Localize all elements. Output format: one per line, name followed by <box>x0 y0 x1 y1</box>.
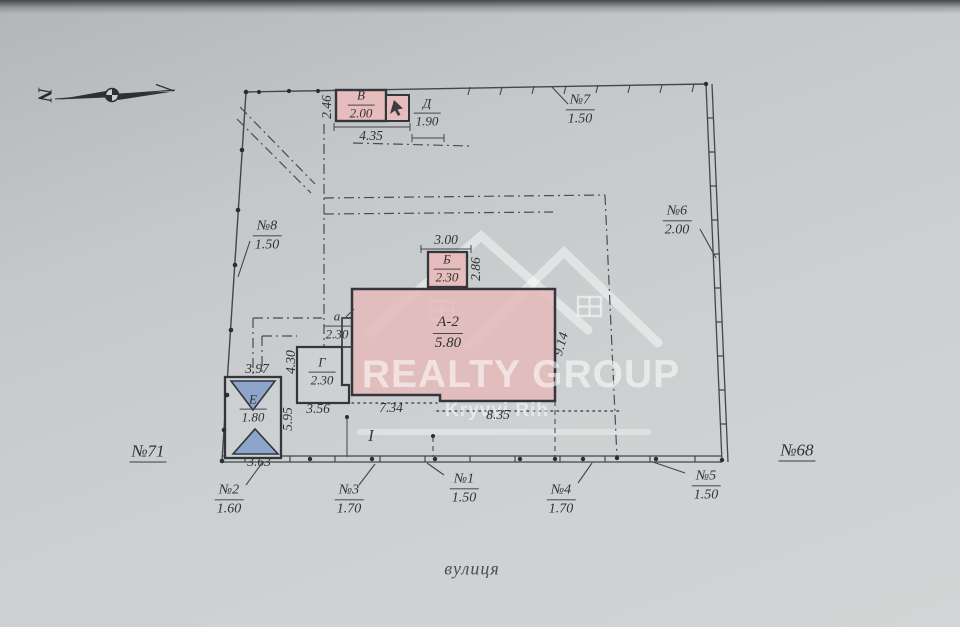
building-letter: Е <box>240 392 267 410</box>
mark-number: №4 <box>547 481 576 500</box>
dim-4-35: 4.35 <box>359 128 383 144</box>
building-value: 5.80 <box>433 334 463 354</box>
dim-4-30: 4.30 <box>283 350 299 374</box>
fence-mark-7: №7 1.50 <box>566 91 595 128</box>
fence-mark-4: №4 1.70 <box>547 481 576 518</box>
mark-number: №6 <box>663 202 692 221</box>
building-letter: Б <box>434 252 461 270</box>
building-b-label: Б 2.30 <box>434 252 461 287</box>
building-letter: Г <box>309 355 336 373</box>
building-letter: А-2 <box>433 313 463 334</box>
fence-mark-6: №6 2.00 <box>663 202 692 239</box>
mark-length: 1.50 <box>253 237 282 255</box>
mark-length: 1.60 <box>215 501 244 519</box>
dim-3-97: 3.97 <box>245 361 269 377</box>
building-letter: В <box>348 88 375 106</box>
dim-2-86: 2.86 <box>468 257 484 281</box>
mark-number: №8 <box>253 217 282 236</box>
building-value: 2.30 <box>324 327 351 344</box>
neighbor-plot-right: №68 <box>778 441 815 462</box>
watermark-brand: REALTY GROUP <box>362 353 680 397</box>
fence-mark-2: №2 1.60 <box>215 481 244 518</box>
building-e-label: Е 1.80 <box>240 392 267 427</box>
right-fence <box>706 84 728 462</box>
dim-3-00: 3.00 <box>434 232 458 248</box>
scanned-site-plan: REALTY GROUP Kryvyi Rih N В 2.00 Д 1.90 … <box>0 0 960 627</box>
annex-a-label: а 2.30 <box>324 309 351 344</box>
fence-mark-1: №1 1.50 <box>450 470 479 507</box>
mark-length: 1.50 <box>692 487 721 505</box>
building-value: 1.90 <box>414 114 441 131</box>
fence-mark-5: №5 1.50 <box>692 467 721 504</box>
building-letter: Д <box>414 96 441 114</box>
fence-mark-3: №3 1.70 <box>335 481 364 518</box>
street-label: вулиця <box>444 559 500 580</box>
mark-length: 2.00 <box>663 222 692 240</box>
building-letter: а <box>324 309 351 327</box>
north-letter: N <box>33 88 56 102</box>
mark-number: №3 <box>335 481 364 500</box>
mark-length: 1.70 <box>335 501 364 519</box>
building-value: 2.30 <box>434 270 461 287</box>
north-arrow-icon <box>55 85 175 102</box>
mark-length: 1.50 <box>566 111 595 129</box>
dim-8-35: 8.35 <box>486 407 510 423</box>
dim-7-34: 7.34 <box>379 400 403 416</box>
site-plan-linework <box>0 0 960 627</box>
building-value: 2.00 <box>348 106 375 123</box>
dim-2-46: 2.46 <box>319 95 335 119</box>
mark-number: №5 <box>692 467 721 486</box>
building-v-label: В 2.00 <box>348 88 375 123</box>
dim-5-95: 5.95 <box>280 407 296 431</box>
mark-number: №7 <box>566 91 595 110</box>
building-a2-label: А-2 5.80 <box>433 313 463 353</box>
building-g-label: Г 2.30 <box>309 355 336 390</box>
mark-length: 1.70 <box>547 501 576 519</box>
neighbor-plot-left: №71 <box>129 442 166 463</box>
dim-3-63: 3.63 <box>247 454 271 470</box>
bottom-fence <box>222 456 722 462</box>
building-value: 1.80 <box>240 410 267 427</box>
building-value: 2.30 <box>309 373 336 390</box>
mark-length: 1.50 <box>450 490 479 508</box>
dim-3-56: 3.56 <box>306 401 330 417</box>
building-d-label: Д 1.90 <box>414 96 441 131</box>
mark-number: №2 <box>215 481 244 500</box>
mark-number: №1 <box>450 470 479 489</box>
section-numeral: I <box>368 426 374 446</box>
leader-lines <box>238 87 716 485</box>
fence-mark-8: №8 1.50 <box>253 217 282 254</box>
